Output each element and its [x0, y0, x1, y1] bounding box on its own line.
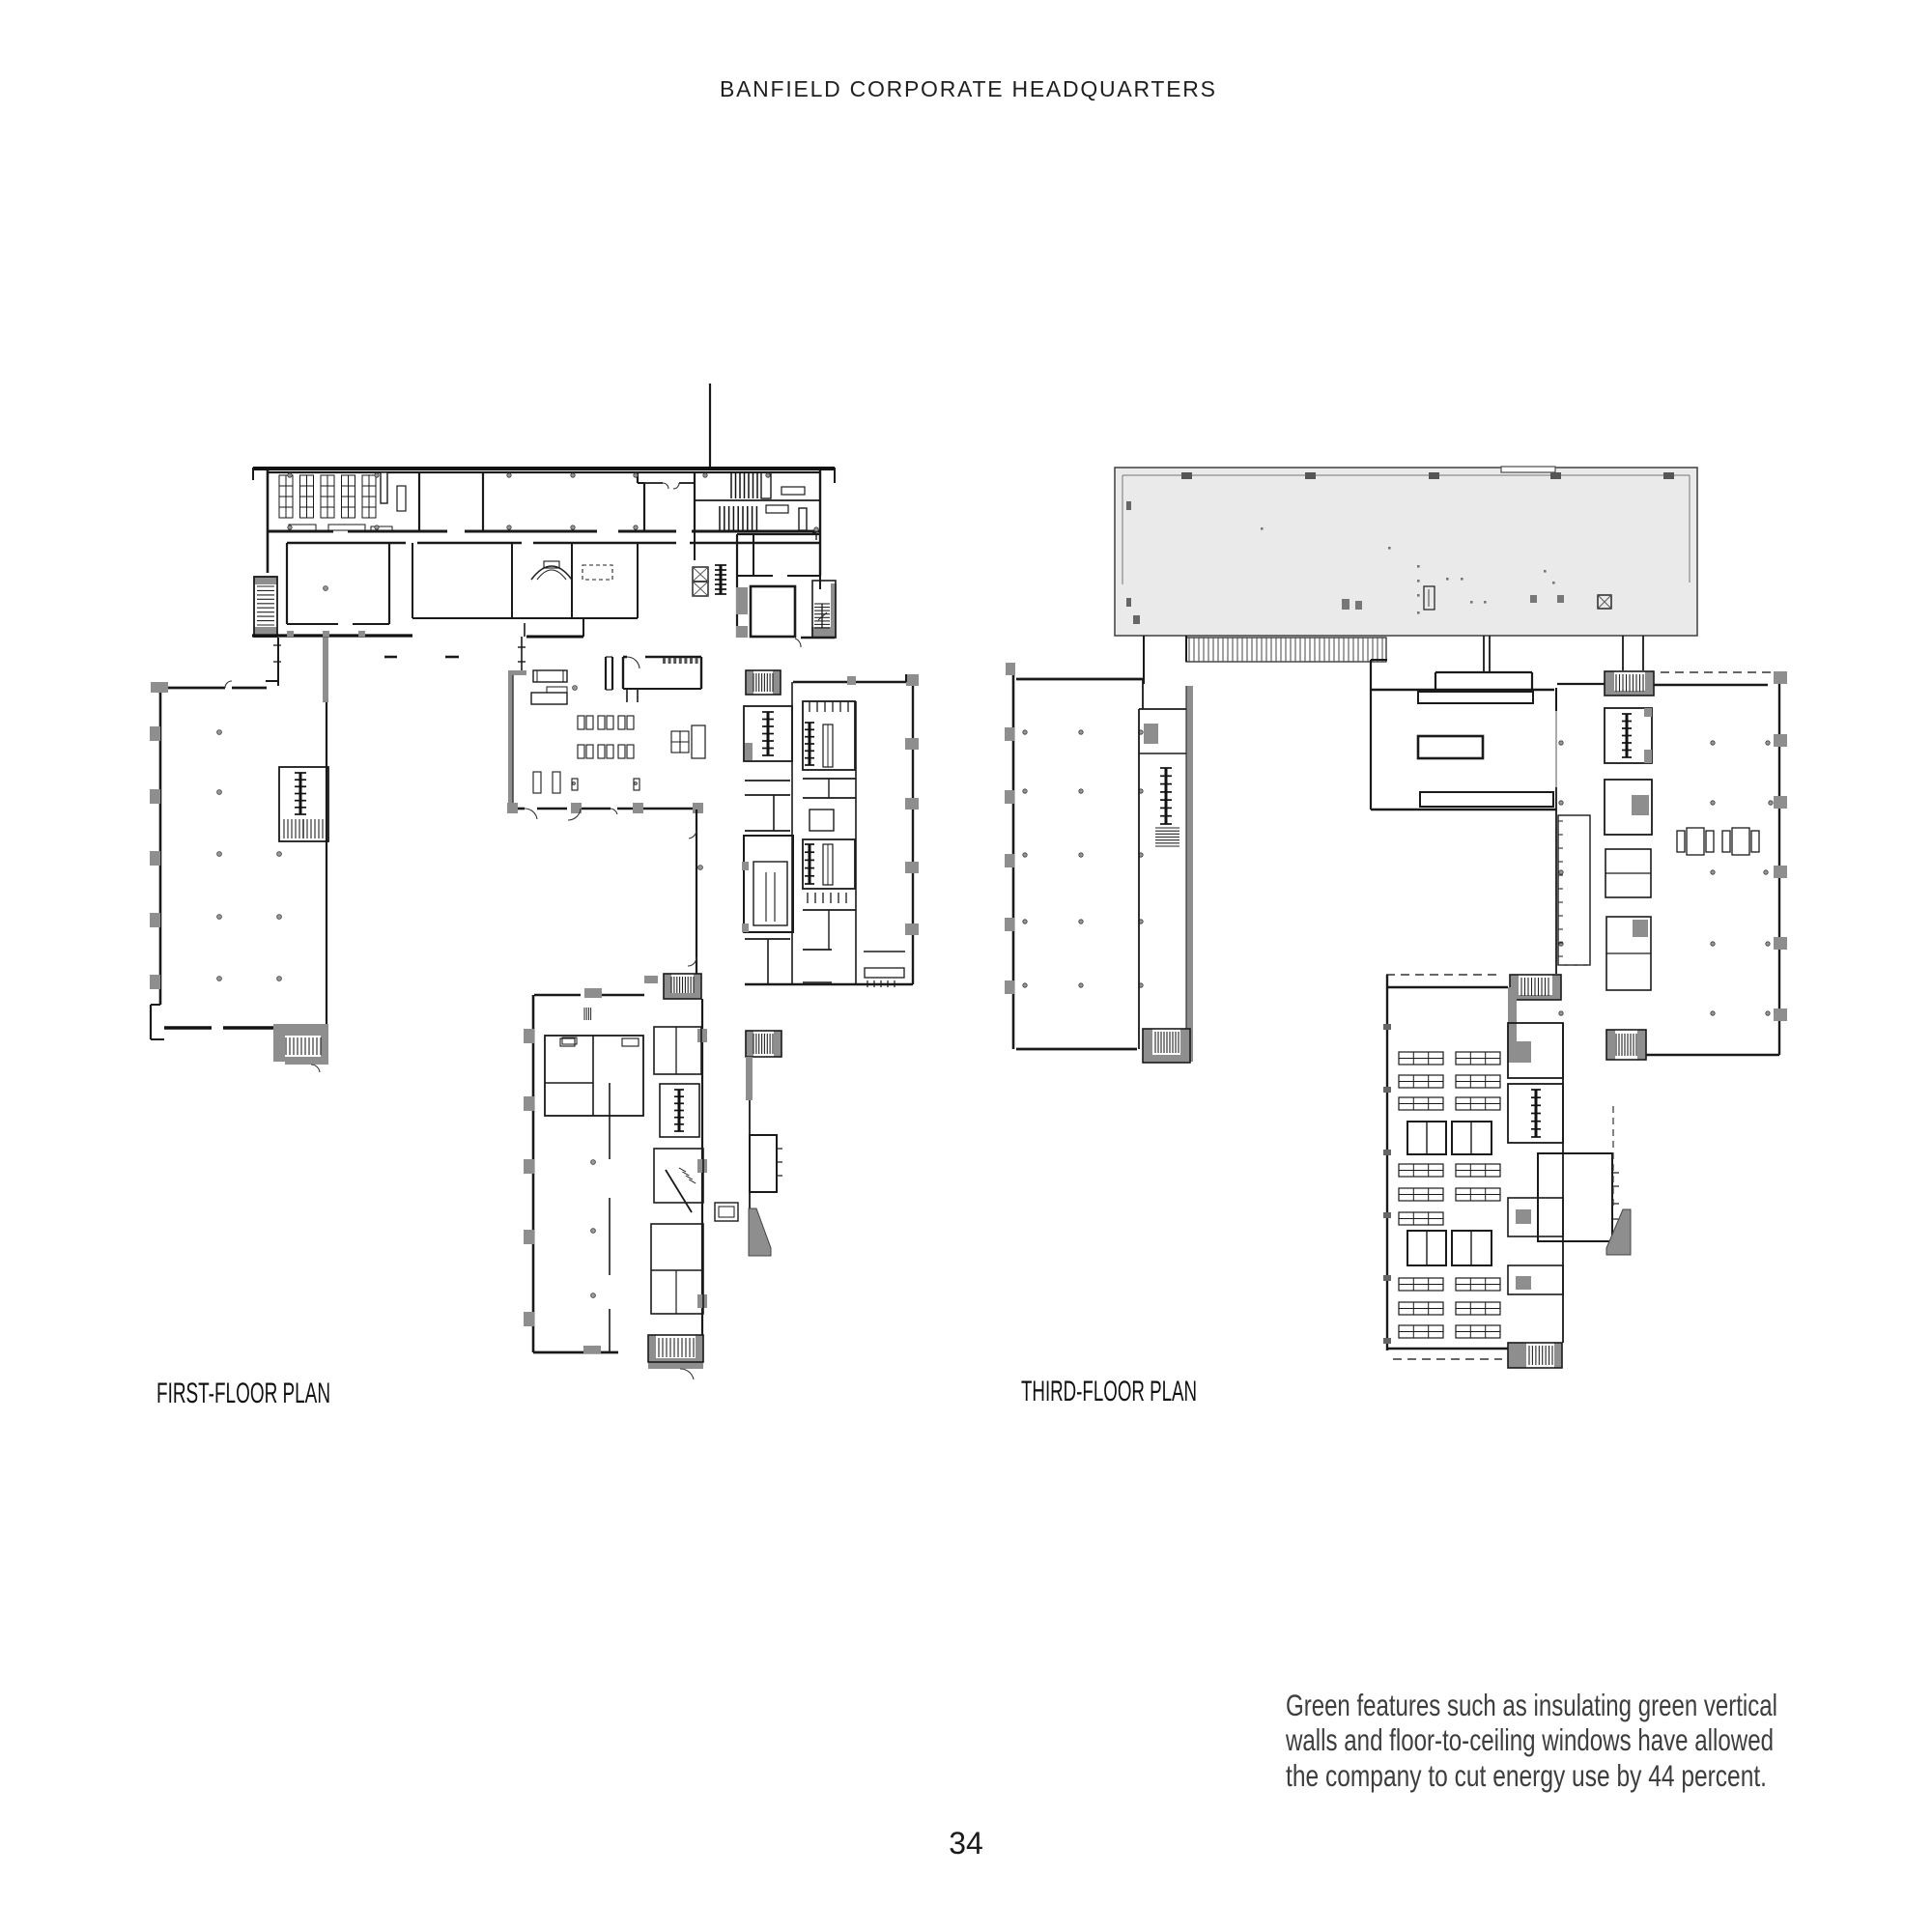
svg-text:THIRD-FLOOR PLAN: THIRD-FLOOR PLAN: [1021, 1376, 1197, 1407]
svg-text:FIRST-FLOOR PLAN: FIRST-FLOOR PLAN: [156, 1378, 330, 1409]
svg-text:34: 34: [949, 1826, 983, 1861]
svg-text:the company to cut energy use: the company to cut energy use by 44 perc…: [1286, 1758, 1767, 1793]
svg-text:Green features such as insulat: Green features such as insulating green …: [1286, 1688, 1777, 1722]
svg-text:walls and floor-to-ceiling win: walls and floor-to-ceiling windows have …: [1285, 1722, 1774, 1757]
svg-text:BANFIELD CORPORATE HEADQUARTER: BANFIELD CORPORATE HEADQUARTERS: [720, 76, 1215, 101]
